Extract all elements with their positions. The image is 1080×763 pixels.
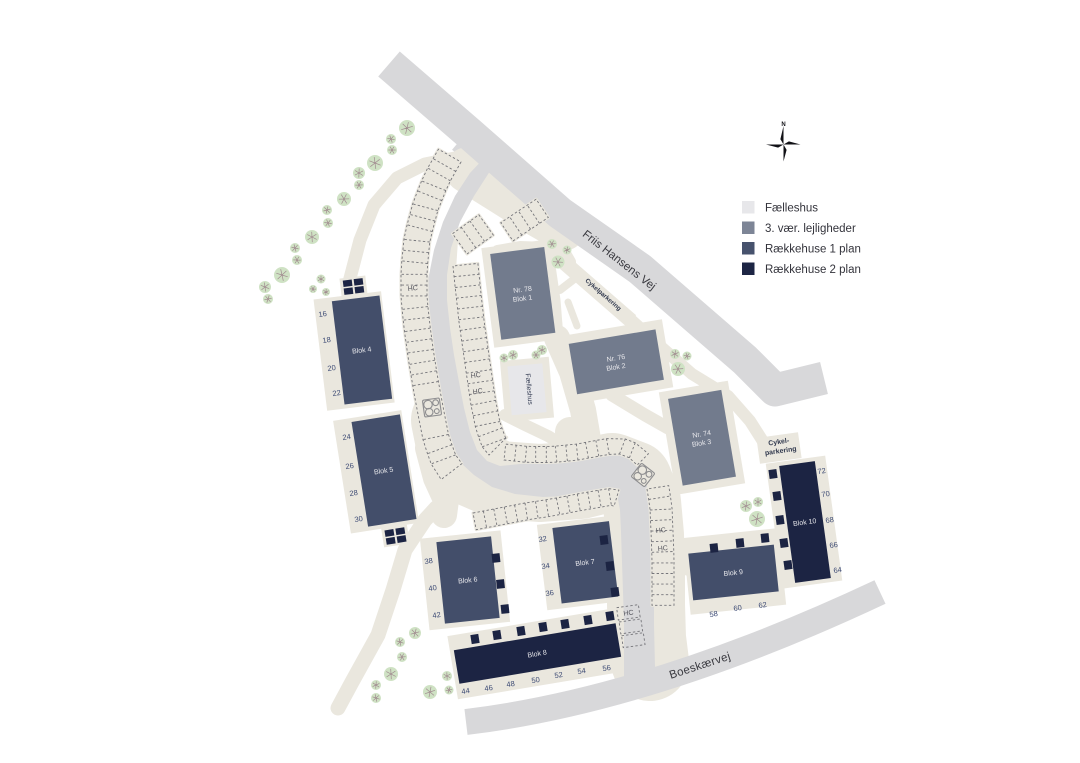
svg-text:58: 58 — [709, 609, 719, 619]
svg-text:56: 56 — [602, 663, 612, 673]
svg-text:48: 48 — [506, 679, 516, 689]
svg-text:HC: HC — [472, 388, 483, 396]
svg-text:64: 64 — [833, 565, 843, 575]
svg-text:18: 18 — [322, 335, 332, 345]
svg-text:Fælleshus: Fælleshus — [765, 203, 818, 215]
svg-text:50: 50 — [531, 675, 541, 685]
svg-text:52: 52 — [554, 670, 564, 680]
svg-text:20: 20 — [327, 363, 337, 373]
svg-text:22: 22 — [332, 388, 342, 398]
svg-text:62: 62 — [758, 600, 768, 610]
svg-text:HC: HC — [657, 545, 668, 553]
svg-text:42: 42 — [432, 610, 442, 620]
svg-text:28: 28 — [349, 488, 359, 498]
svg-text:HC: HC — [470, 372, 481, 380]
svg-text:38: 38 — [424, 556, 434, 566]
svg-text:70: 70 — [821, 489, 831, 499]
svg-text:40: 40 — [428, 583, 438, 593]
svg-text:HC: HC — [407, 285, 418, 293]
svg-text:44: 44 — [461, 686, 471, 696]
svg-text:36: 36 — [545, 588, 555, 598]
svg-text:68: 68 — [825, 515, 835, 525]
svg-text:HC: HC — [655, 527, 666, 535]
svg-text:30: 30 — [354, 514, 364, 524]
svg-text:HC: HC — [623, 609, 634, 617]
svg-text:66: 66 — [829, 540, 839, 550]
svg-text:Rækkehuse 1 plan: Rækkehuse 1 plan — [765, 244, 861, 256]
svg-text:46: 46 — [484, 683, 494, 693]
svg-text:32: 32 — [538, 534, 548, 544]
svg-text:54: 54 — [577, 666, 587, 676]
svg-text:N: N — [781, 122, 785, 128]
svg-text:72: 72 — [817, 466, 827, 476]
svg-text:26: 26 — [345, 461, 355, 471]
svg-text:16: 16 — [318, 309, 328, 319]
svg-text:34: 34 — [541, 561, 551, 571]
svg-text:Rækkehuse 2 plan: Rækkehuse 2 plan — [765, 264, 861, 276]
svg-text:24: 24 — [342, 432, 352, 442]
svg-text:60: 60 — [733, 603, 743, 613]
svg-text:3. vær. lejligheder: 3. vær. lejligheder — [765, 223, 856, 235]
